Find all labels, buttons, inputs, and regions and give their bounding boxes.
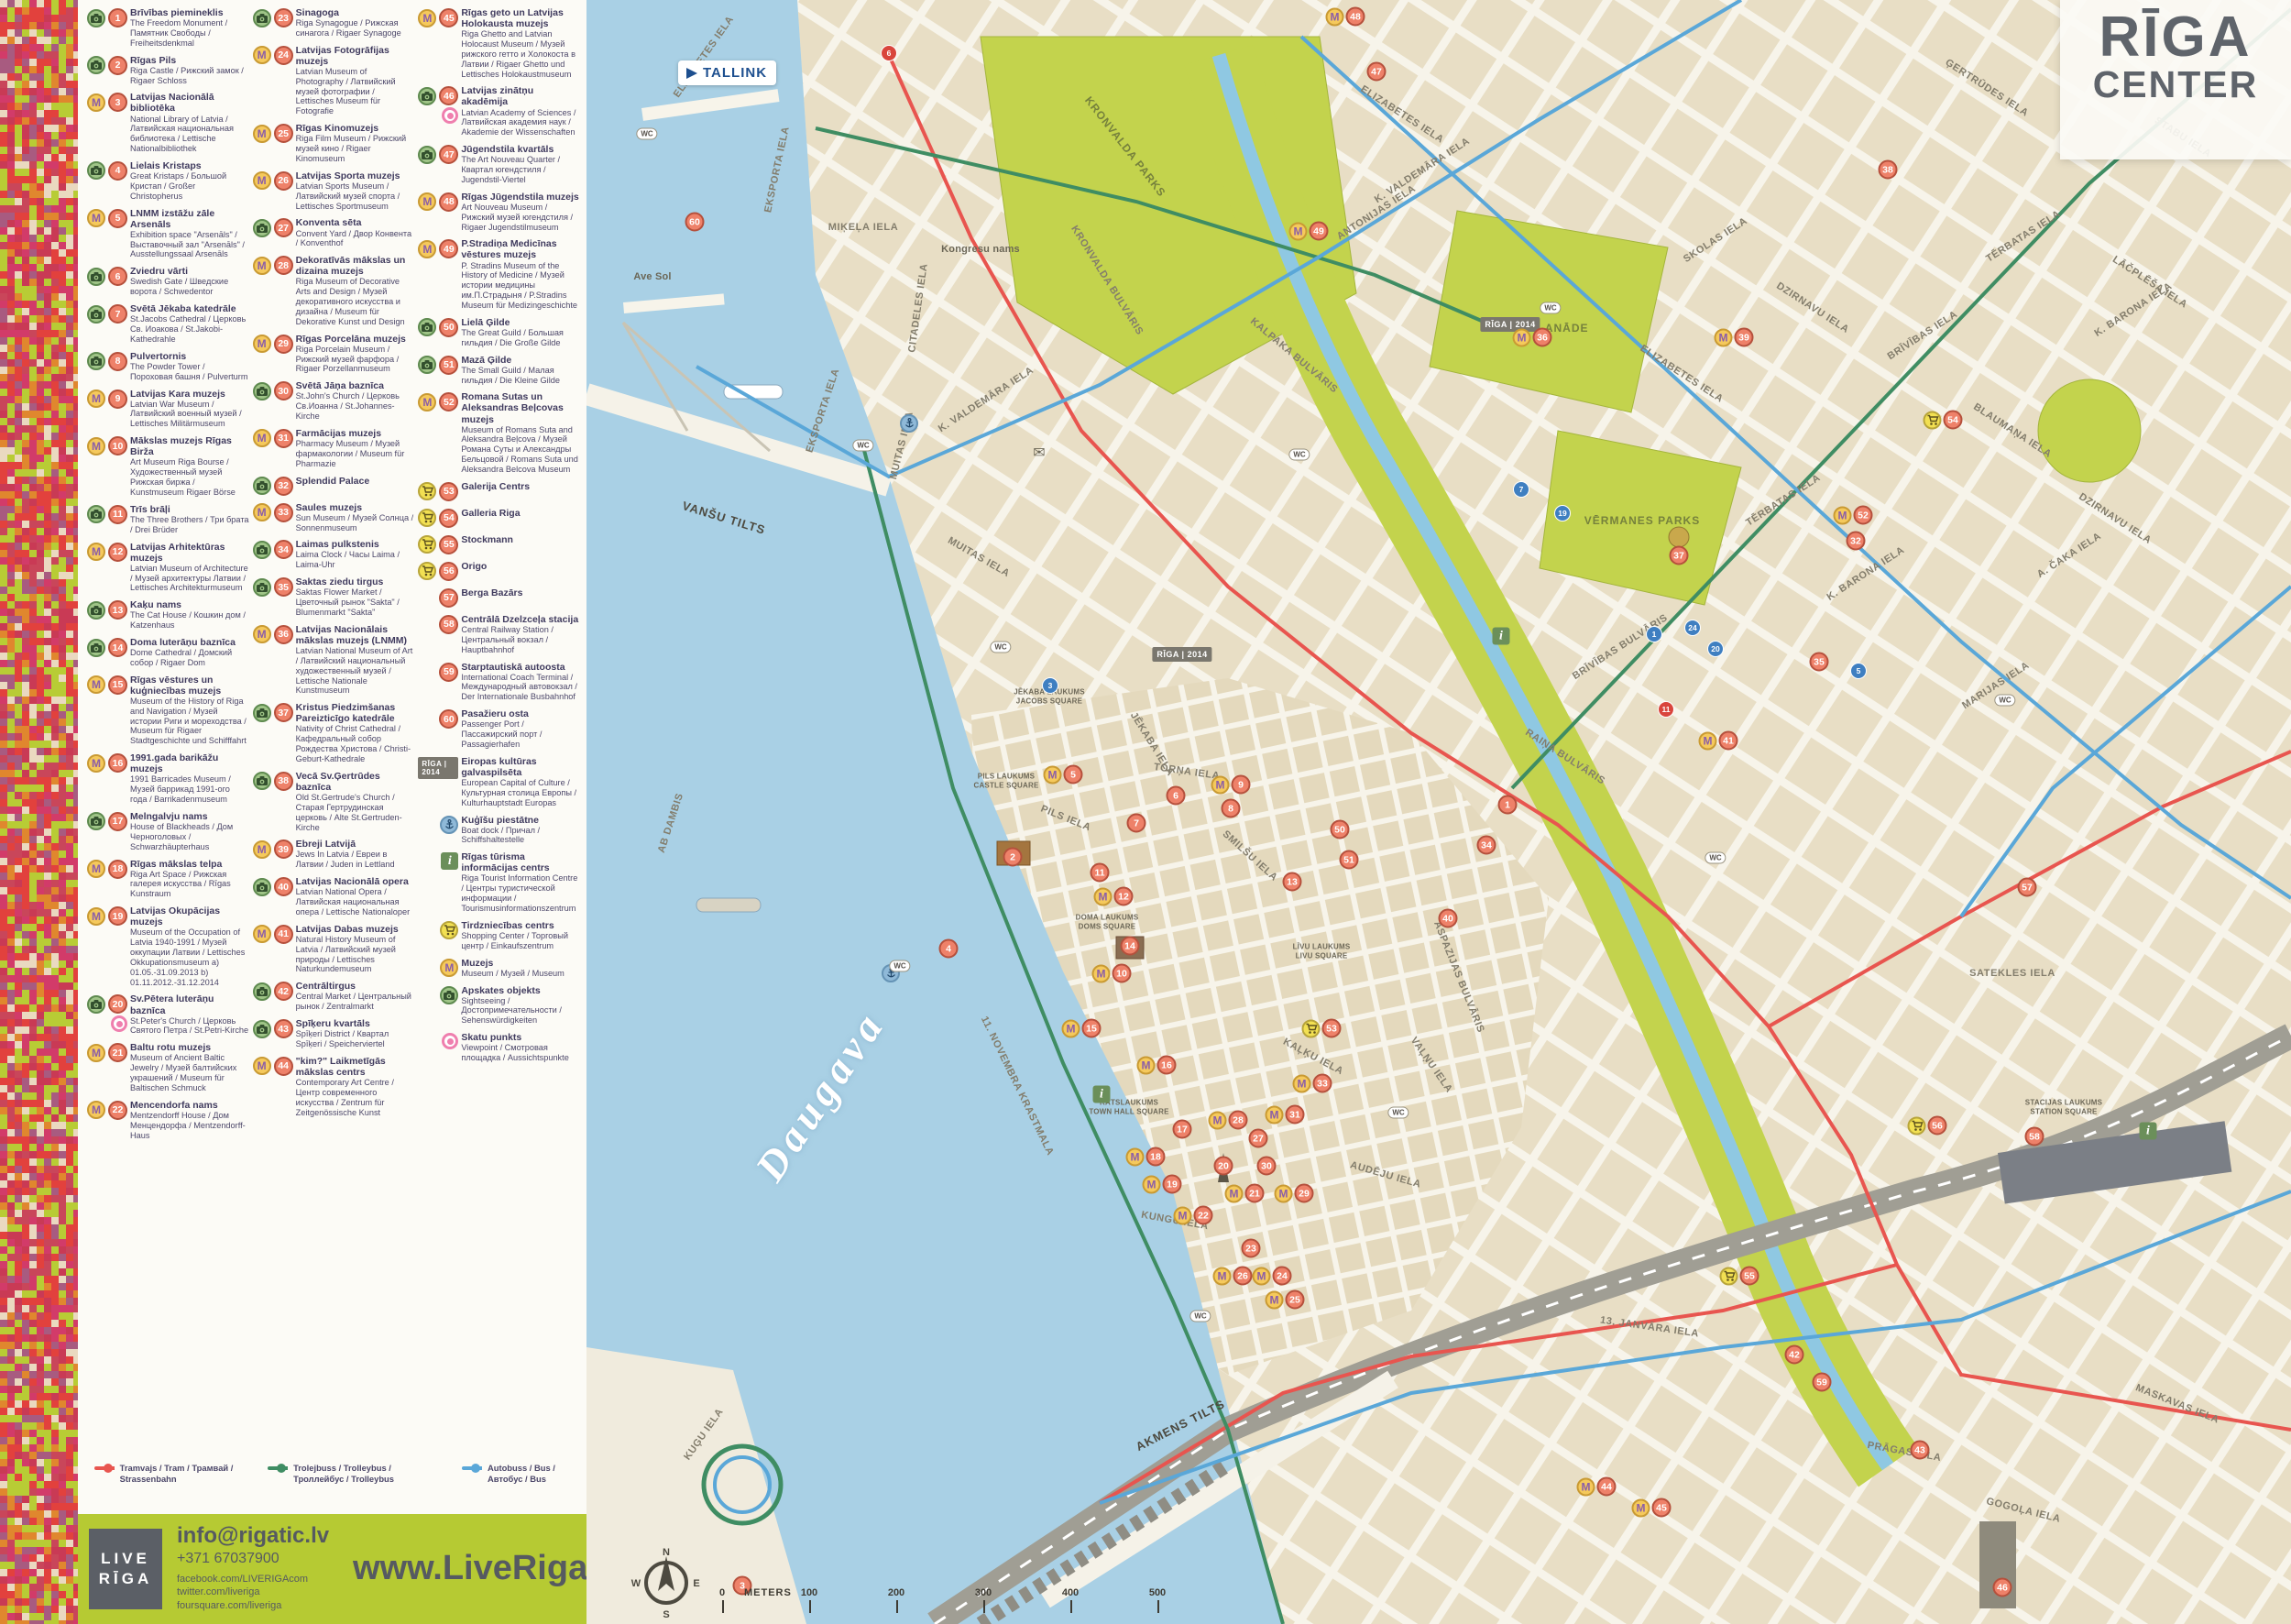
legend-item-icons: 1 bbox=[87, 7, 127, 49]
legend-item-19: M19Latvijas Okupācijas muzejsMuseum of t… bbox=[87, 905, 249, 987]
tallink-flag-icon bbox=[685, 67, 698, 80]
poi-number-badge: 17 bbox=[1173, 1120, 1192, 1139]
legend-special-riga2014: RĪGA | 2014Eiropas kultūras galvaspilsēt… bbox=[418, 756, 580, 808]
legend-item-title: Splendid Palace bbox=[296, 476, 415, 487]
poi-number-badge: 38 bbox=[274, 772, 293, 791]
map-marker-49: M49 bbox=[1289, 222, 1329, 241]
map-marker-30: 30 bbox=[1257, 1157, 1277, 1176]
legend-item-icons: 2 bbox=[87, 55, 127, 86]
museum-icon: M bbox=[253, 925, 271, 943]
museum-icon: M bbox=[1094, 887, 1113, 905]
tram-line-icon bbox=[94, 1463, 115, 1474]
legend-item-icons: 42 bbox=[253, 981, 293, 1012]
legend-item-icons: 34 bbox=[253, 539, 293, 570]
poi-number-badge: 49 bbox=[439, 239, 458, 258]
museum-icon: M bbox=[1266, 1105, 1284, 1124]
map-marker-57: 57 bbox=[2018, 878, 2037, 897]
shopping-cart-icon bbox=[1908, 1116, 1926, 1135]
legend-item-translations: House of Blackheads / Дом Черноголовых /… bbox=[130, 822, 249, 852]
transit-route-badge: 11 bbox=[1658, 701, 1674, 718]
museum-icon: M bbox=[1213, 1267, 1232, 1285]
legend-item-icons: 55 bbox=[418, 534, 458, 554]
legend-item-6: 6Zviedru vārtiSwedish Gate / Шведские во… bbox=[87, 266, 249, 297]
poi-number-badge: 36 bbox=[1533, 328, 1552, 347]
legend-item-translations: Riga Art Space / Рижская галерея искусст… bbox=[130, 870, 249, 900]
legend-item-icons: i bbox=[418, 851, 458, 914]
legend-item-translations: Museum of the History of Riga and Naviga… bbox=[130, 697, 249, 746]
legend-item-28: M28Dekoratīvās mākslas un dizaina muzejs… bbox=[253, 255, 415, 326]
legend-item-icons: M12 bbox=[87, 542, 127, 594]
post-office-icon: ✉ bbox=[1033, 444, 1045, 462]
legend-item-translations: Old St.Gertrude's Church / Старая Гертру… bbox=[296, 793, 415, 832]
legend-item-title: Apskates objekts bbox=[461, 985, 580, 996]
legend-item-31: M31Farmācijas muzejsPharmacy Museum / Му… bbox=[253, 428, 415, 469]
map-marker-23: 23 bbox=[1242, 1239, 1261, 1258]
legend-item-translations: St.John's Church / Церковь Св.Иоанна / S… bbox=[296, 391, 415, 422]
anchor-icon bbox=[440, 816, 458, 834]
shopping-cart-icon bbox=[418, 509, 436, 527]
legend-item-23: 23SinagogaRiga Synagogue / Рижская синаг… bbox=[253, 7, 415, 38]
poi-number-badge: 25 bbox=[1286, 1290, 1305, 1310]
map-marker-29: M29 bbox=[1275, 1184, 1314, 1203]
map-marker-38: 38 bbox=[1879, 160, 1898, 180]
legend-item-translations: Museum of Romans Suta and Aleksandra Beļ… bbox=[461, 425, 580, 475]
poi-number-badge: 32 bbox=[274, 477, 293, 496]
poi-number-badge: 11 bbox=[108, 505, 127, 524]
scale-mark: 100 bbox=[801, 1587, 817, 1598]
camera-icon bbox=[253, 1020, 271, 1038]
riga2014-icon: RĪGA | 2014 bbox=[418, 757, 458, 779]
legend-item-36: M36Latvijas Nacionālais mākslas muzejs (… bbox=[253, 624, 415, 696]
poi-number-badge: 29 bbox=[1295, 1184, 1314, 1203]
tallink-label: TALLINK bbox=[703, 65, 767, 81]
museum-icon: M bbox=[253, 257, 271, 275]
legend-item-translations: Riga Film Museum / Рижский музей кино / … bbox=[296, 134, 415, 164]
museum-icon: M bbox=[253, 429, 271, 447]
poi-number-badge: 57 bbox=[2018, 878, 2037, 897]
legend-special-view: Skatu punktsViewpoint / Смотровая площад… bbox=[418, 1032, 580, 1063]
legend-item-44: M44"kim?" Laikmetīgās mākslas centrsCont… bbox=[253, 1056, 415, 1118]
camera-icon bbox=[87, 995, 105, 1014]
camera-icon bbox=[87, 268, 105, 286]
museum-icon: M bbox=[1225, 1184, 1244, 1202]
poi-number-badge: 3 bbox=[108, 93, 127, 112]
museum-icon: M bbox=[1293, 1074, 1311, 1092]
wc-marker: WC bbox=[1189, 1311, 1211, 1322]
legend-item-title: Trīs brāļi bbox=[130, 504, 249, 515]
shopping-cart-icon bbox=[1720, 1267, 1738, 1285]
legend-item-icons: 11 bbox=[87, 504, 127, 535]
poi-number-badge: 50 bbox=[439, 318, 458, 337]
poi-number-badge: 47 bbox=[439, 145, 458, 164]
museum-icon: M bbox=[1632, 1498, 1650, 1517]
legend-item-translations: Mentzendorff House / Дом Менцендорфа / M… bbox=[130, 1111, 249, 1141]
legend-item-35: 35Saktas ziedu tirgusSaktas Flower Marke… bbox=[253, 576, 415, 618]
legend-item-translations: Riga Synagogue / Рижская синагога / Riga… bbox=[296, 18, 415, 38]
map-marker-21: M21 bbox=[1225, 1184, 1265, 1203]
camera-icon bbox=[253, 219, 271, 237]
legend-item-translations: The Freedom Monument / Памятник Свободы … bbox=[130, 18, 249, 49]
legend-item-title: Centrālā Dzelzceļa stacija bbox=[461, 614, 580, 625]
map-marker-7: 7 bbox=[1127, 814, 1146, 833]
map-marker-36: M36 bbox=[1513, 328, 1552, 347]
poi-number-badge: 10 bbox=[1113, 964, 1132, 983]
legend-item-50: 50Lielā ĢildeThe Great Guild / Большая г… bbox=[418, 317, 580, 348]
poi-number-badge: 27 bbox=[1249, 1129, 1268, 1148]
scale-mark: 200 bbox=[888, 1587, 904, 1598]
poi-number-badge: 4 bbox=[108, 161, 127, 181]
legend-item-2: 2Rīgas PilsRiga Castle / Рижский замок /… bbox=[87, 55, 249, 86]
legend-item-title: Rīgas tūrisma informācijas centrs bbox=[461, 851, 580, 873]
legend-item-icons: M52 bbox=[418, 391, 458, 474]
museum-icon: M bbox=[87, 754, 105, 773]
poi-number-badge: 30 bbox=[274, 381, 293, 401]
legend-item-48: M48Rīgas Jūgendstila muzejsArt Nouveau M… bbox=[418, 192, 580, 233]
poi-number-badge: 52 bbox=[1854, 506, 1873, 525]
poi-number-badge: 19 bbox=[1163, 1175, 1182, 1194]
svg-text:S: S bbox=[663, 1609, 669, 1619]
legend-item-icons: M49 bbox=[418, 238, 458, 310]
transport-legend-label: Tramvajs / Tram / Трамвай / Strassenbahn bbox=[120, 1463, 245, 1485]
legend-item-26: M26Latvijas Sporta muzejsLatvian Sports … bbox=[253, 170, 415, 212]
museum-icon: M bbox=[1209, 1111, 1227, 1129]
view-icon bbox=[442, 1033, 458, 1049]
scale-zero: 0 bbox=[719, 1587, 725, 1598]
map-marker-47: 47 bbox=[1367, 62, 1387, 82]
poi-number-badge: 5 bbox=[1064, 765, 1083, 785]
legend-item-title: Tirdzniecības centrs bbox=[461, 920, 580, 931]
legend-panel: 1Brīvības piemineklisThe Freedom Monumen… bbox=[78, 0, 586, 1624]
poi-number-badge: 34 bbox=[274, 540, 293, 559]
poi-number-badge: 36 bbox=[274, 625, 293, 644]
map-marker-9: M9 bbox=[1211, 775, 1251, 795]
wc-marker: WC bbox=[636, 128, 657, 140]
legend-item-translations: Latvian Academy of Sciences / Латвийская… bbox=[461, 108, 580, 138]
legend-item-title: Kristus Piedzimšanas Pareizticīgo katedr… bbox=[296, 702, 415, 724]
poi-number-badge: 41 bbox=[274, 925, 293, 944]
legend-item-37: 37Kristus Piedzimšanas Pareizticīgo kate… bbox=[253, 702, 415, 764]
legend-item-icons: M15 bbox=[87, 675, 127, 746]
map-marker-52: M52 bbox=[1834, 506, 1873, 525]
poi-number-badge: 18 bbox=[108, 860, 127, 879]
legend-item-32: 32Splendid Palace bbox=[253, 476, 415, 496]
phone-text: +371 67037900 bbox=[177, 1551, 329, 1567]
legend-item-title: Rīgas geto un Latvijas Holokausta muzejs bbox=[461, 7, 580, 29]
legend-item-title: Latvijas Dabas muzejs bbox=[296, 924, 415, 935]
legend-item-18: M18Rīgas mākslas telpaRiga Art Space / Р… bbox=[87, 859, 249, 900]
legend-item-icons: M19 bbox=[87, 905, 127, 987]
svg-text:W: W bbox=[631, 1578, 641, 1589]
map-marker-37: 37 bbox=[1670, 546, 1689, 565]
poi-number-badge: 21 bbox=[1245, 1184, 1265, 1203]
poi-number-badge: 56 bbox=[1928, 1116, 1947, 1136]
foursquare-link: foursquare.com/liveriga bbox=[177, 1599, 329, 1612]
legend-item-icons: 53 bbox=[418, 481, 458, 501]
legend-item-translations: Dome Cathedral / Домский собор / Rigaer … bbox=[130, 648, 249, 668]
legend-item-icons: 54 bbox=[418, 508, 458, 528]
legend-item-translations: Spīķeri District / Квартал Spīķeri / Spe… bbox=[296, 1029, 415, 1049]
map-marker-2: 2 bbox=[1003, 848, 1023, 867]
legend-item-icons bbox=[418, 920, 458, 951]
map-marker-31: M31 bbox=[1266, 1105, 1305, 1125]
poi-number-badge: 38 bbox=[1879, 160, 1898, 180]
legend-item-title: Latvijas Okupācijas muzejs bbox=[130, 905, 249, 927]
legend-item-icons: 50 bbox=[418, 317, 458, 348]
legend-item-translations: Nativity of Christ Cathedral / Кафедраль… bbox=[296, 724, 415, 763]
poi-number-badge: 42 bbox=[1785, 1345, 1804, 1365]
poi-number-badge: 55 bbox=[1740, 1267, 1759, 1286]
square-label: DOMA LAUKUMS DOMS SQUARE bbox=[1076, 913, 1139, 930]
shopping-cart-icon bbox=[1302, 1019, 1321, 1037]
poi-number-badge: 31 bbox=[1286, 1105, 1305, 1125]
poi-number-badge: 37 bbox=[1670, 546, 1689, 565]
legend-item-icons: 30 bbox=[253, 380, 293, 422]
legend-item-translations: The Powder Tower / Пороховая башня / Pul… bbox=[130, 362, 249, 382]
legend-item-translations: Latvian Sports Museum / Латвийский музей… bbox=[296, 181, 415, 212]
legend-item-41: M41Latvijas Dabas muzejsNatural History … bbox=[253, 924, 415, 975]
map-marker-56: 56 bbox=[1908, 1116, 1947, 1136]
map-marker-27: 27 bbox=[1249, 1129, 1268, 1148]
compass-rose: N S W E bbox=[630, 1547, 702, 1619]
email-text: info@rigatic.lv bbox=[177, 1523, 329, 1549]
map-title-box: RĪGA CENTER bbox=[2060, 0, 2291, 159]
legend-item-title: 1991.gada barikāžu muzejs bbox=[130, 752, 249, 774]
legend-item-translations: The Art Nouveau Quarter / Квартал югендс… bbox=[461, 155, 580, 185]
legend-item-translations: St.Peter's Church / Церковь Святого Петр… bbox=[130, 1016, 249, 1037]
shopping-cart-icon bbox=[1924, 411, 1942, 429]
museum-icon: M bbox=[1092, 964, 1111, 982]
transport-legend-label: Trolejbuss / Trolleybus / Троллейбус / T… bbox=[293, 1463, 438, 1485]
map-marker-5: M5 bbox=[1044, 765, 1083, 785]
legend-item-57: 57Berga Bazārs bbox=[418, 587, 580, 608]
transit-route-badge: 1 bbox=[1646, 626, 1662, 642]
transport-legend-tram: Tramvajs / Tram / Трамвай / Strassenbahn bbox=[94, 1463, 244, 1512]
legend-item-22: M22Mencendorfa namsMentzendorff House / … bbox=[87, 1100, 249, 1141]
poi-number-badge: 52 bbox=[439, 392, 458, 411]
legend-item-title: Lielā Ģilde bbox=[461, 317, 580, 328]
map-base-drawing bbox=[586, 0, 2291, 1624]
map-marker-12: M12 bbox=[1094, 887, 1134, 906]
museum-icon: M bbox=[87, 209, 105, 227]
legend-item-icons: M44 bbox=[253, 1056, 293, 1118]
poi-number-badge: 45 bbox=[1652, 1498, 1672, 1518]
legend-item-icons: 46 bbox=[418, 85, 458, 137]
map-marker-8: 8 bbox=[1222, 799, 1241, 818]
legend-item-title: Starptautiskā autoosta bbox=[461, 662, 580, 673]
legend-special-museum: MMuzejsMuseum / Музей / Museum bbox=[418, 958, 580, 979]
museum-icon: M bbox=[253, 1057, 271, 1075]
camera-icon bbox=[87, 9, 105, 27]
wc-marker: WC bbox=[1994, 695, 2015, 707]
legend-item-title: Rīgas vēstures un kuģniecības muzejs bbox=[130, 675, 249, 697]
legend-special-info: iRīgas tūrisma informācijas centrsRiga T… bbox=[418, 851, 580, 914]
legend-item-title: Romana Sutas un Aleksandras Beļcovas muz… bbox=[461, 391, 580, 424]
legend-item-translations: Viewpoint / Смотровая площадка / Aussich… bbox=[461, 1043, 580, 1063]
transport-legend-bus: Autobuss / Bus / Автобус / Bus bbox=[462, 1463, 580, 1512]
legend-item-translations: St.Jacobs Cathedral / Церковь Св. Иоаков… bbox=[130, 314, 249, 345]
transit-route-badge: 5 bbox=[1850, 663, 1867, 679]
transit-route-badge: 24 bbox=[1684, 620, 1701, 636]
poi-number-badge: 44 bbox=[1597, 1477, 1617, 1497]
poi-number-badge: 13 bbox=[1283, 872, 1302, 892]
legend-item-translations: Art Nouveau Museum / Рижский музей югенд… bbox=[461, 203, 580, 233]
legend-item-title: Saktas ziedu tirgus bbox=[296, 576, 415, 587]
legend-item-icons: 60 bbox=[418, 708, 458, 750]
legend-item-icons: RĪGA | 2014 bbox=[418, 756, 458, 808]
legend-item-title: Ebreji Latvijā bbox=[296, 839, 415, 850]
legend-item-title: Farmācijas muzejs bbox=[296, 428, 415, 439]
map-marker-48: M48 bbox=[1326, 7, 1365, 27]
legend-item-icons: 38 bbox=[253, 771, 293, 833]
transit-route-badge: 6 bbox=[881, 45, 897, 61]
camera-icon bbox=[253, 541, 271, 559]
poi-number-badge: 8 bbox=[108, 352, 127, 371]
legend-item-54: 54Galleria Riga bbox=[418, 508, 580, 528]
legend-item-translations: Latvian National Opera / Латвийская наци… bbox=[296, 887, 415, 917]
legend-item-translations: Art Museum Riga Bourse / Художественный … bbox=[130, 457, 249, 497]
viewpoint-icon bbox=[442, 107, 458, 124]
legend-item-title: Rīgas Porcelāna muzejs bbox=[296, 334, 415, 345]
legend-item-icons: M bbox=[418, 958, 458, 979]
legend-item-icons: M48 bbox=[418, 192, 458, 233]
poi-number-badge: 46 bbox=[439, 86, 458, 105]
facebook-link: facebook.com/LIVERIGAcom bbox=[177, 1573, 329, 1586]
legend-item-title: Rīgas Pils bbox=[130, 55, 249, 66]
poi-number-badge: 15 bbox=[108, 675, 127, 695]
scale-unit: METERS bbox=[744, 1587, 792, 1598]
legend-item-icons: M26 bbox=[253, 170, 293, 212]
poi-number-badge: 1 bbox=[108, 8, 127, 27]
camera-icon bbox=[87, 305, 105, 324]
transport-legend-label: Autobuss / Bus / Автобус / Bus bbox=[488, 1463, 580, 1485]
legend-item-title: Doma luterāņu baznīca bbox=[130, 637, 249, 648]
camera-icon bbox=[87, 812, 105, 830]
legend-item-translations: Riga Porcelain Museum / Рижский музей фа… bbox=[296, 345, 415, 375]
map-marker-6: 6 bbox=[1167, 786, 1186, 806]
legend-item-8: 8PulvertornisThe Powder Tower / Порохова… bbox=[87, 351, 249, 382]
legend-item-27: 27Konventa sētaConvent Yard / Двор Конве… bbox=[253, 217, 415, 248]
poi-number-badge: 9 bbox=[108, 390, 127, 409]
legend-item-16: M161991.gada barikāžu muzejs1991 Barrica… bbox=[87, 752, 249, 805]
cart-icon bbox=[440, 921, 458, 939]
museum-icon: M bbox=[87, 860, 105, 878]
legend-item-icons: 59 bbox=[418, 662, 458, 703]
poi-number-badge: 7 bbox=[108, 304, 127, 324]
map-marker-54: 54 bbox=[1924, 411, 1963, 430]
legend-item-47: 47Jūgendstila kvartālsThe Art Nouveau Qu… bbox=[418, 144, 580, 185]
map-marker-53: 53 bbox=[1302, 1019, 1342, 1038]
wc-marker: WC bbox=[1540, 302, 1561, 314]
legend-item-icons: 57 bbox=[418, 587, 458, 608]
legend-item-translations: Passenger Port / Пассажирский порт / Pas… bbox=[461, 719, 580, 750]
poi-number-badge: 27 bbox=[274, 218, 293, 237]
legend-item-title: "kim?" Laikmetīgās mākslas centrs bbox=[296, 1056, 415, 1078]
poi-number-badge: 14 bbox=[108, 638, 127, 657]
map-marker-58: 58 bbox=[2025, 1127, 2044, 1147]
poi-number-badge: 57 bbox=[439, 588, 458, 608]
legend-item-translations: Contemporary Art Centre / Центр современ… bbox=[296, 1078, 415, 1117]
museum-icon: M bbox=[1266, 1290, 1284, 1309]
poi-number-badge: 26 bbox=[274, 171, 293, 191]
poi-number-badge: 34 bbox=[1477, 836, 1496, 855]
camera-icon bbox=[87, 505, 105, 523]
legend-item-icons: M29 bbox=[253, 334, 293, 375]
legend-item-translations: P. Stradins Museum of the History of Med… bbox=[461, 261, 580, 311]
legend-item-12: M12Latvijas Arhitektūras muzejsLatvian M… bbox=[87, 542, 249, 594]
legend-item-translations: Museum of the Occupation of Latvia 1940-… bbox=[130, 927, 249, 987]
museum-icon: M bbox=[418, 9, 436, 27]
map-title-line2: CENTER bbox=[2060, 66, 2291, 104]
poi-number-badge: 48 bbox=[1346, 7, 1365, 27]
wc-marker: WC bbox=[990, 642, 1011, 653]
shopping-cart-icon bbox=[418, 482, 436, 500]
museum-icon: M bbox=[418, 192, 436, 211]
transit-route-badge: 20 bbox=[1707, 641, 1724, 657]
map-marker-26: M26 bbox=[1213, 1267, 1253, 1286]
legend-item-translations: Jews In Latvia / Евреи в Латвии / Juden … bbox=[296, 850, 415, 870]
legend-item-icons: M16 bbox=[87, 752, 127, 805]
legend-item-55: 55Stockmann bbox=[418, 534, 580, 554]
legend-item-translations: The Great Guild / Большая гильдия / Die … bbox=[461, 328, 580, 348]
legend-item-title: LNMM izstāžu zāle Arsenāls bbox=[130, 208, 249, 230]
legend-item-title: Latvijas zinātņu akadēmija bbox=[461, 85, 580, 107]
museum-icon: M bbox=[253, 171, 271, 190]
legend-item-icons: 58 bbox=[418, 614, 458, 655]
museum-icon: M bbox=[87, 907, 105, 926]
museum-icon: M bbox=[1044, 765, 1062, 784]
legend-item-title: Latvijas Kara muzejs bbox=[130, 389, 249, 400]
poi-number-badge: 50 bbox=[1331, 820, 1350, 839]
legend-item-34: 34Laimas pulkstenisLaima Clock / Часы La… bbox=[253, 539, 415, 570]
legend-item-icons: M31 bbox=[253, 428, 293, 469]
map-marker-25: M25 bbox=[1266, 1290, 1305, 1310]
legend-item-translations: National Library of Latvia / Латвийская … bbox=[130, 115, 249, 154]
poi-number-badge: 35 bbox=[1810, 653, 1829, 672]
legend-item-39: M39Ebreji LatvijāJews In Latvia / Евреи … bbox=[253, 839, 415, 870]
legend-item-translations: Convent Yard / Двор Конвента / Konventho… bbox=[296, 229, 415, 249]
poi-number-badge: 23 bbox=[1242, 1239, 1261, 1258]
camera-icon bbox=[253, 878, 271, 896]
legend-item-title: Pulvertornis bbox=[130, 351, 249, 362]
legend-item-translations: The Three Brothers / Три брата / Drei Br… bbox=[130, 515, 249, 535]
legend-item-translations: European Capital of Culture / Культурная… bbox=[461, 778, 580, 808]
legend-item-25: M25Rīgas KinomuzejsRiga Film Museum / Ри… bbox=[253, 123, 415, 164]
legend-item-title: Pasažieru osta bbox=[461, 708, 580, 719]
map-marker-32: 32 bbox=[1847, 532, 1866, 551]
camera-icon bbox=[440, 986, 458, 1004]
legend-item-29: M29Rīgas Porcelāna muzejsRiga Porcelain … bbox=[253, 334, 415, 375]
poi-number-badge: 20 bbox=[108, 994, 127, 1014]
camera-icon bbox=[253, 382, 271, 401]
legend-item-title: Saules muzejs bbox=[296, 502, 415, 513]
poi-number-badge: 21 bbox=[108, 1043, 127, 1062]
legend-item-title: Rīgas Kinomuzejs bbox=[296, 123, 415, 134]
museum-icon: M bbox=[1137, 1056, 1156, 1074]
poi-number-badge: 60 bbox=[685, 213, 705, 232]
poi-number-badge: 58 bbox=[439, 615, 458, 634]
wc-marker: WC bbox=[852, 440, 873, 452]
legend-item-icons: M24 bbox=[253, 45, 293, 116]
legend-item-icons: 4 bbox=[87, 160, 127, 202]
museum-icon: M bbox=[1126, 1147, 1145, 1166]
poi-number-badge: 24 bbox=[1273, 1267, 1292, 1286]
legend-item-45: M45Rīgas geto un Latvijas Holokausta muz… bbox=[418, 7, 580, 79]
museum-icon: M bbox=[87, 437, 105, 455]
legend-item-icons: M41 bbox=[253, 924, 293, 975]
poi-number-badge: 40 bbox=[1439, 909, 1458, 928]
legend-item-icons: 8 bbox=[87, 351, 127, 382]
decorative-mosaic-strip bbox=[0, 0, 78, 1624]
